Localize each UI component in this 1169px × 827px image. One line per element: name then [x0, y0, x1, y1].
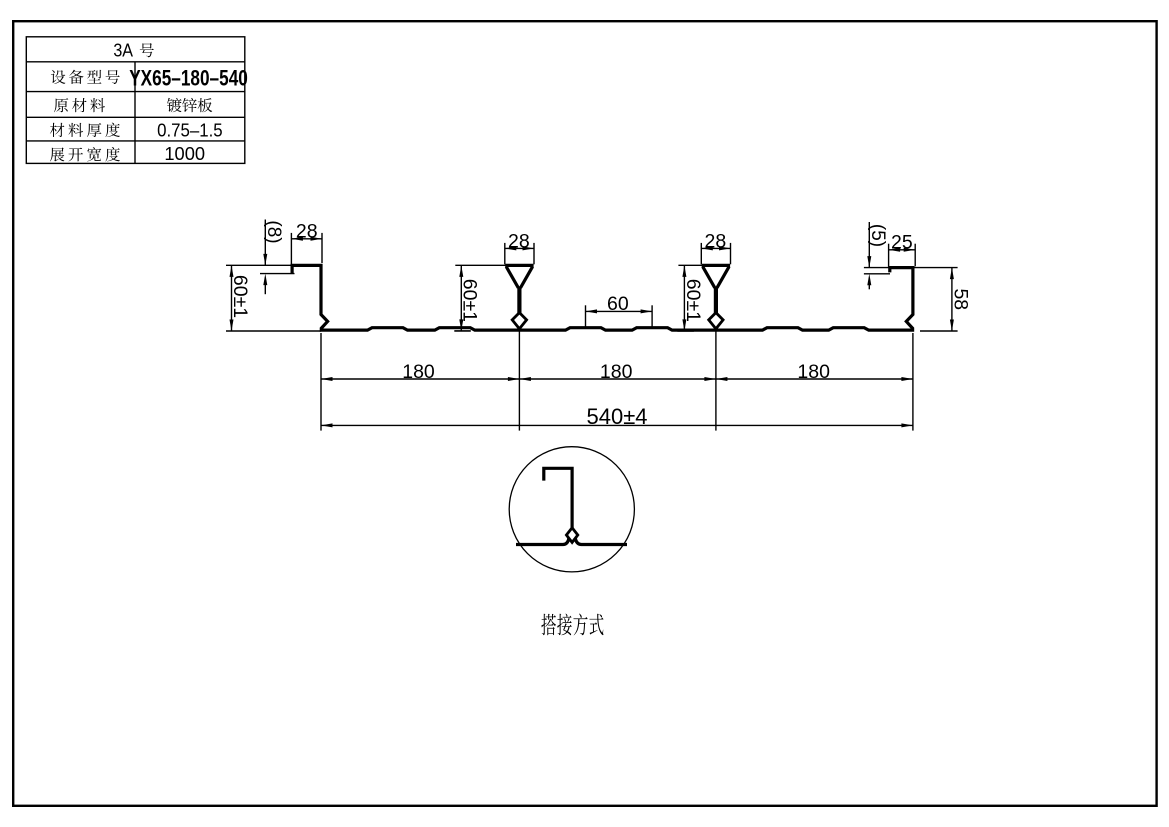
svg-text:58: 58 [949, 288, 971, 310]
svg-text:0.75–1.5: 0.75–1.5 [157, 120, 223, 141]
svg-text:60±1: 60±1 [682, 279, 704, 322]
svg-text:28: 28 [296, 221, 318, 243]
svg-text:28: 28 [705, 230, 727, 252]
svg-text:25: 25 [891, 232, 913, 254]
svg-text:3A: 3A [113, 40, 133, 61]
svg-text:180: 180 [402, 361, 435, 383]
svg-text:1000: 1000 [164, 143, 205, 164]
svg-text:(5): (5) [867, 224, 888, 247]
svg-text:540±4: 540±4 [586, 404, 647, 429]
svg-text:60: 60 [607, 293, 629, 315]
svg-text:60±1: 60±1 [229, 275, 251, 318]
svg-text:180: 180 [600, 361, 633, 383]
svg-text:YX65–180–540: YX65–180–540 [129, 66, 248, 91]
svg-text:180: 180 [797, 361, 830, 383]
svg-text:28: 28 [508, 230, 530, 252]
svg-text:(8): (8) [263, 220, 284, 243]
svg-text:60±1: 60±1 [459, 279, 481, 322]
